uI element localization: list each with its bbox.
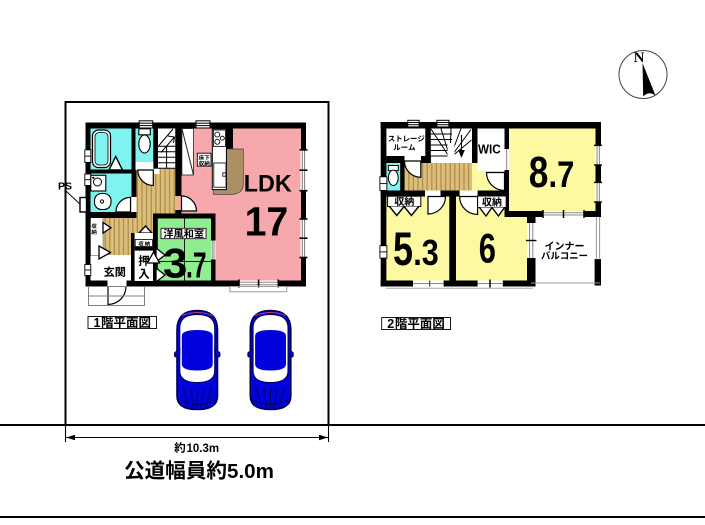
svg-text:5.0m: 5.0m [227,460,274,483]
svg-text:.7: .7 [549,153,575,195]
svg-text:PS: PS [58,181,72,193]
svg-text:WIC: WIC [478,143,501,157]
svg-text:10.3m: 10.3m [187,443,220,455]
svg-text:6: 6 [479,225,496,271]
svg-text:1: 1 [94,316,101,330]
svg-text:.7: .7 [186,244,207,285]
svg-text:8: 8 [529,148,549,197]
svg-text:.3: .3 [413,232,439,273]
svg-text:N: N [634,50,645,66]
svg-text:LDK: LDK [244,171,292,198]
svg-text:17: 17 [245,199,289,245]
svg-text:5: 5 [393,223,413,276]
svg-text:2: 2 [387,317,394,331]
svg-text:3: 3 [163,239,187,286]
